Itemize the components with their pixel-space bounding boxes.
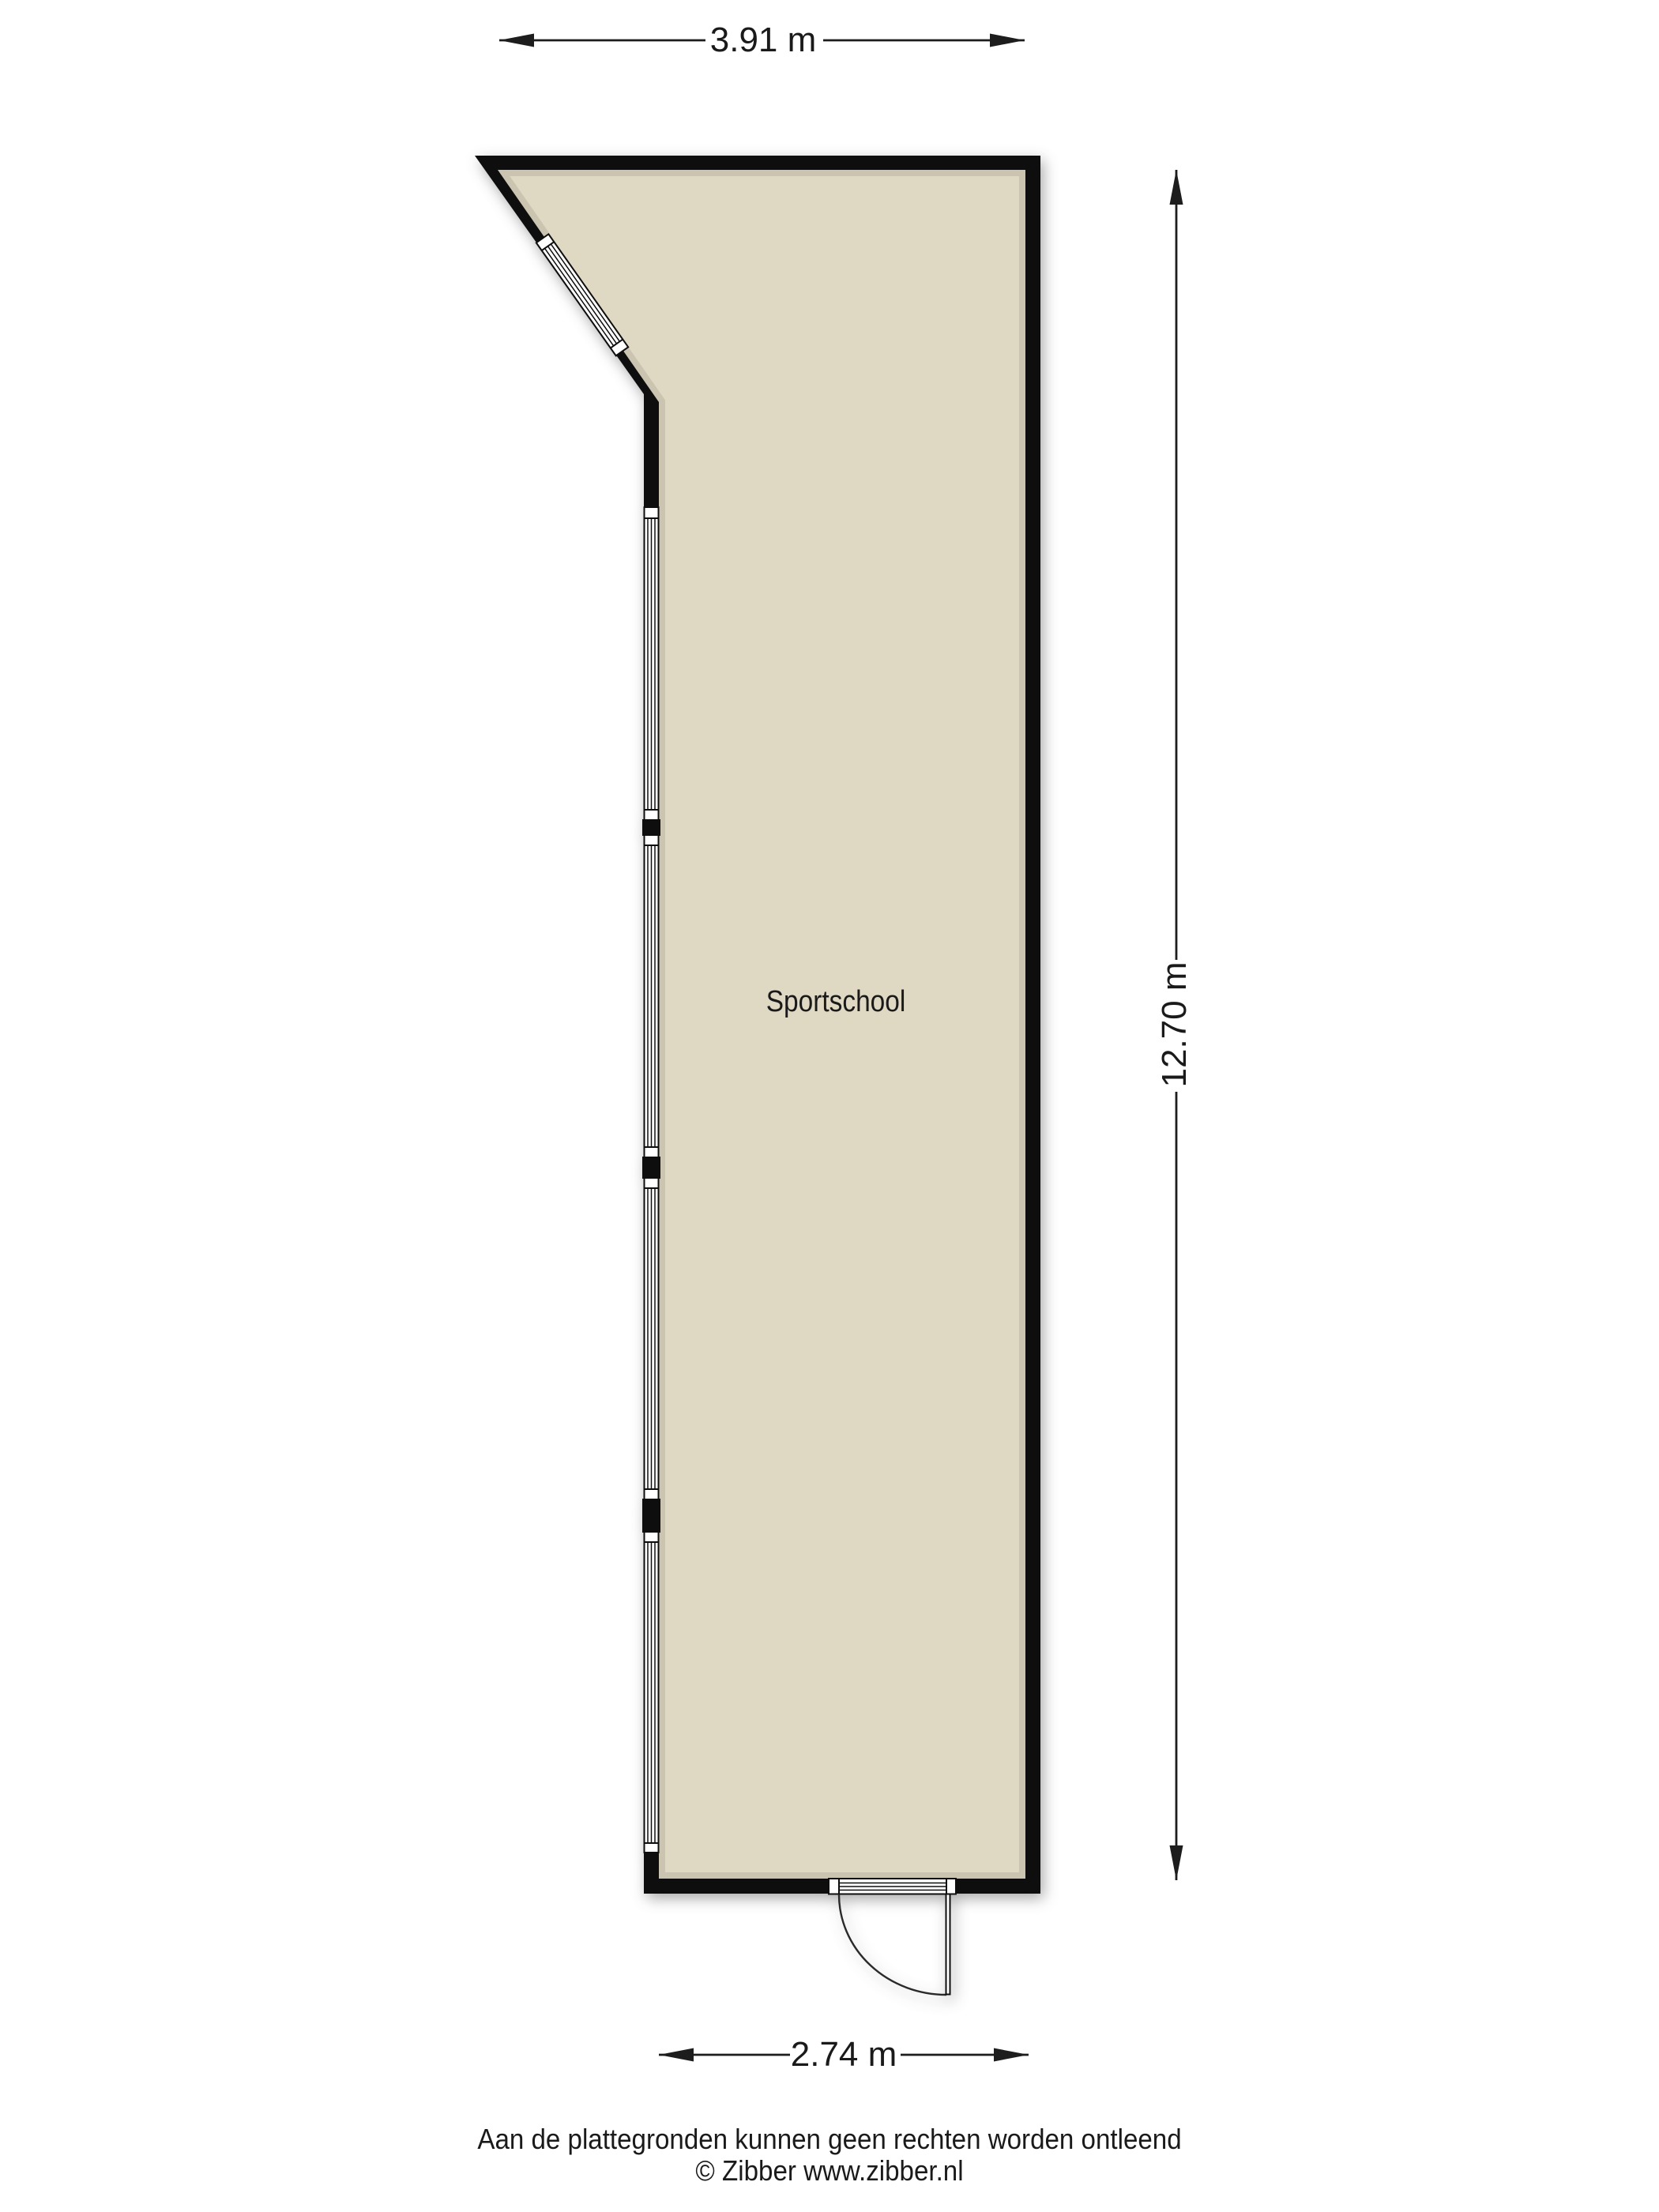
dimension-right-label: 12.70 m (1156, 962, 1194, 1088)
door-leaf (946, 1894, 950, 1995)
footer: Aan de plattegronden kunnen geen rechten… (0, 2124, 1659, 2187)
window-mullion (642, 1157, 660, 1179)
floorplan-page: 3.91 m 12.70 m 2.74 m Sportschool Aan de… (0, 0, 1659, 2212)
floor-area (498, 170, 1025, 1879)
footer-copyright: © Zibber www.zibber.nl (66, 2155, 1593, 2187)
entrance-door (829, 1879, 956, 1995)
window-mullion (642, 1499, 660, 1533)
building (475, 156, 1040, 1995)
door-swing-arc (839, 1894, 946, 1995)
dimension-top-label: 3.91 m (710, 21, 817, 59)
room-label: Sportschool (766, 985, 906, 1018)
window-mullion (642, 819, 660, 836)
floorplan-drawing (0, 0, 1659, 2212)
left-windows (642, 507, 660, 1853)
footer-disclaimer: Aan de plattegronden kunnen geen rechten… (66, 2124, 1593, 2155)
dimension-bottom-label: 2.74 m (791, 2036, 897, 2074)
